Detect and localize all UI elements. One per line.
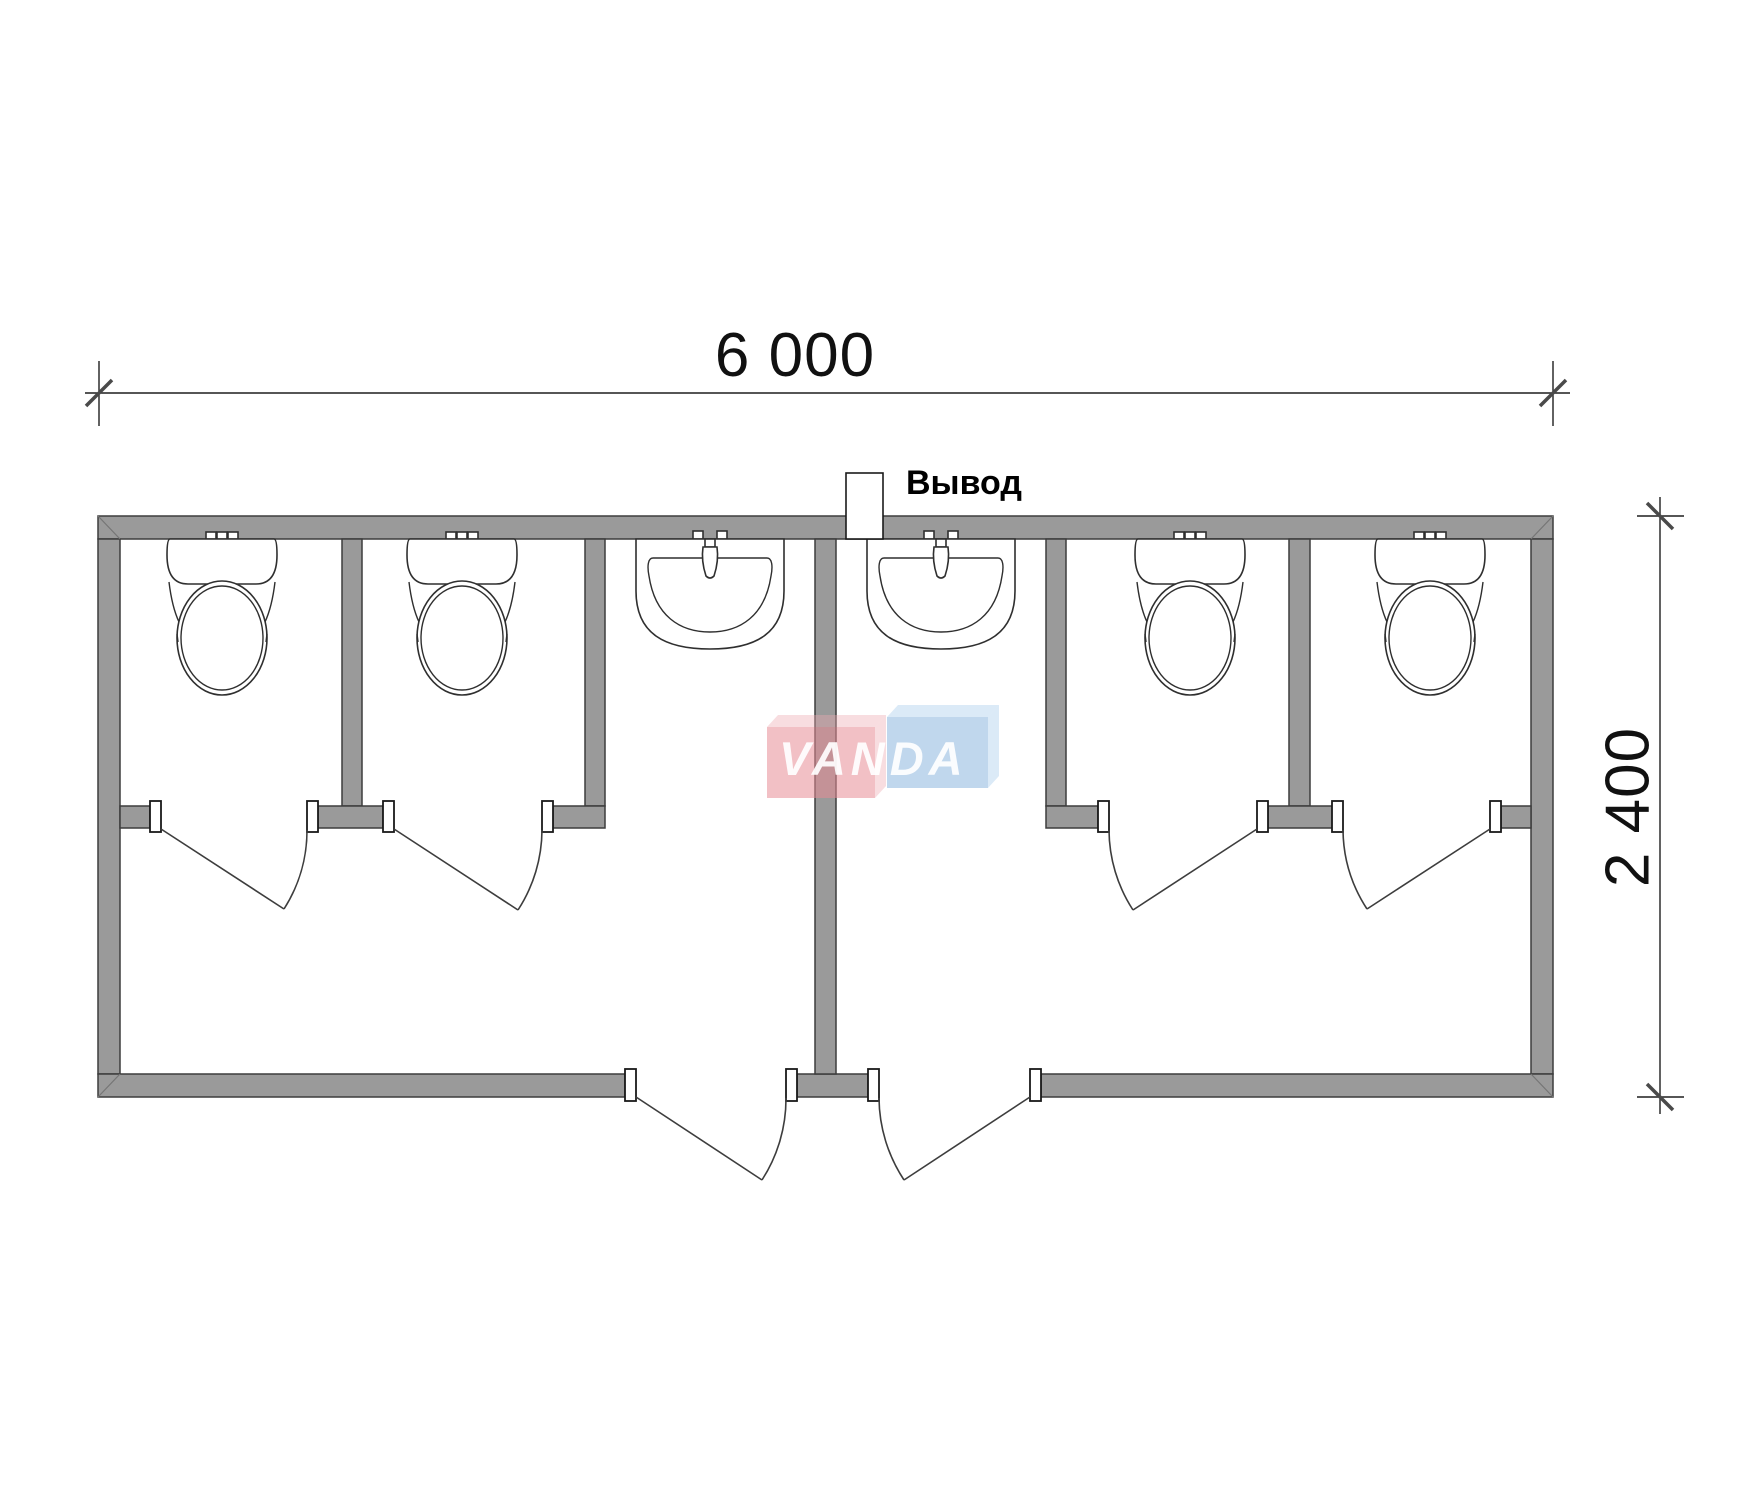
logo-blue-box-top bbox=[887, 705, 999, 717]
toilet-fixture bbox=[407, 532, 517, 695]
floor-plan-canvas: 6 000 2 400 Вывод VANDA bbox=[0, 0, 1763, 1503]
center-wall bbox=[815, 539, 836, 1074]
watermark-text: VANDA bbox=[779, 731, 968, 786]
width-dimension-label: 6 000 bbox=[645, 320, 945, 391]
toilet-fixture bbox=[1375, 532, 1485, 695]
toilet-fixture bbox=[167, 532, 277, 695]
sink-fixture bbox=[867, 531, 1015, 649]
interior-walls bbox=[120, 539, 1531, 1074]
outlet-label: Вывод bbox=[906, 464, 1022, 503]
logo-pink-box-top bbox=[767, 715, 886, 727]
logo-blue-box-side bbox=[988, 705, 999, 788]
partition-wall bbox=[1289, 539, 1310, 806]
height-dimension-label: 2 400 bbox=[1593, 727, 1664, 887]
partition-wall bbox=[585, 539, 605, 806]
partition-wall bbox=[342, 539, 362, 806]
toilet-fixture bbox=[1135, 532, 1245, 695]
sink-fixture bbox=[636, 531, 784, 649]
utility-outlet-box bbox=[846, 473, 883, 539]
partition-wall bbox=[1046, 539, 1066, 806]
